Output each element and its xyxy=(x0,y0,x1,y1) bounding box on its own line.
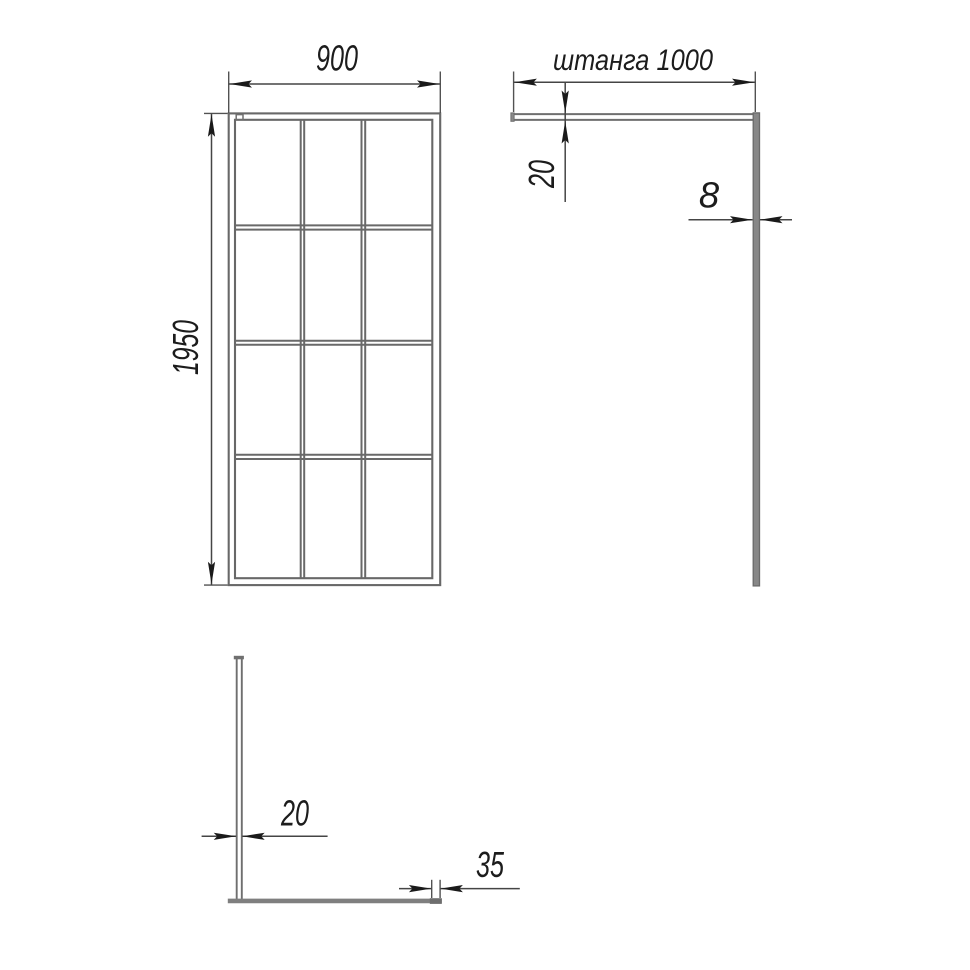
svg-text:35: 35 xyxy=(476,844,504,885)
svg-text:штанга 1000: штанга 1000 xyxy=(553,44,713,77)
svg-text:900: 900 xyxy=(316,38,358,79)
svg-text:1950: 1950 xyxy=(165,320,206,375)
svg-text:20: 20 xyxy=(521,160,562,189)
svg-text:20: 20 xyxy=(280,793,309,834)
svg-text:8: 8 xyxy=(699,175,720,216)
